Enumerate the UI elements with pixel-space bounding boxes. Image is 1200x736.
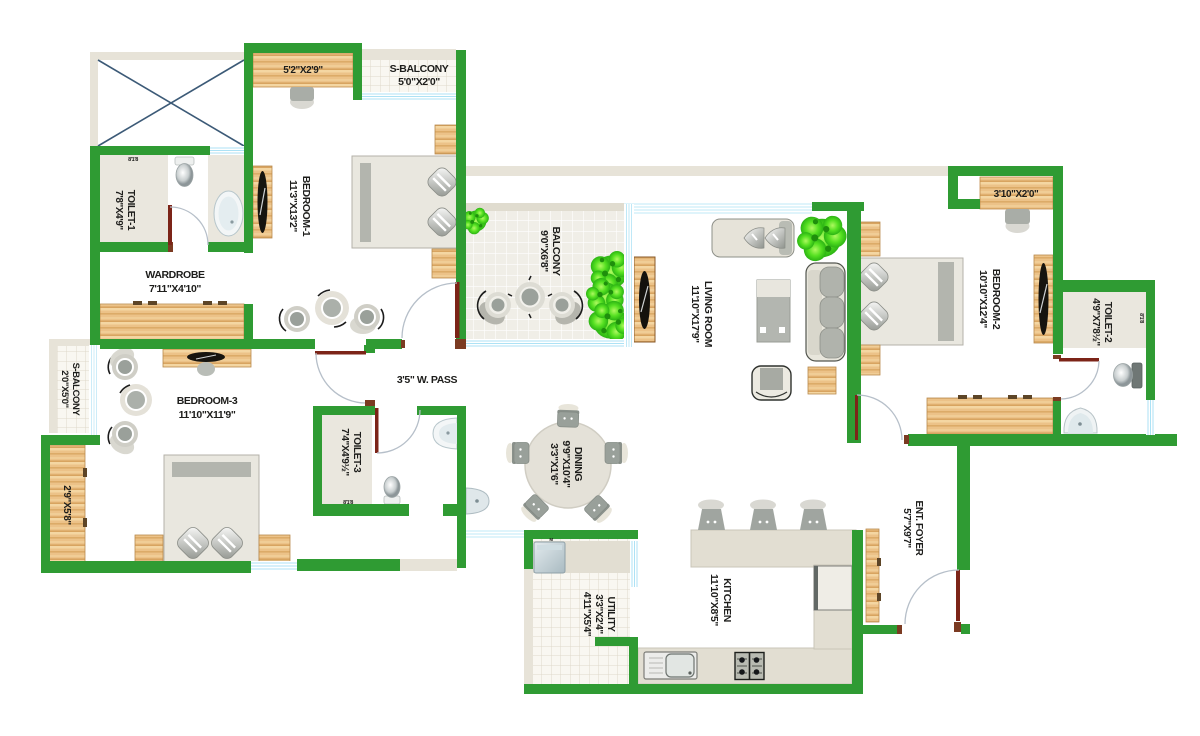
svg-text:8'1'8: 8'1'8 — [1138, 313, 1144, 323]
svg-text:5'0"X2'0": 5'0"X2'0" — [398, 76, 440, 88]
svg-text:11'10"X11'9": 11'10"X11'9" — [179, 409, 236, 421]
svg-text:8'1'8: 8'1'8 — [128, 157, 138, 163]
svg-text:BEDROOM-111'3"X13'2": BEDROOM-111'3"X13'2" — [287, 176, 312, 237]
svg-text:8'1'8: 8'1'8 — [343, 500, 353, 506]
svg-text:DINING9'9"X10'4"3'3"X1'6": DINING9'9"X10'4"3'3"X1'6" — [548, 440, 584, 488]
svg-text:KITCHEN11'10"X8'5": KITCHEN11'10"X8'5" — [708, 574, 733, 626]
svg-text:5'2"X2'9": 5'2"X2'9" — [283, 65, 323, 76]
svg-text:7'11"X4'10": 7'11"X4'10" — [149, 283, 201, 295]
svg-text:UTILITY3'3"X2'4"4'11"X5'4": UTILITY3'3"X2'4"4'11"X5'4" — [581, 592, 616, 637]
svg-text:3'10"X2'0": 3'10"X2'0" — [994, 189, 1039, 200]
svg-text:TOILET-37'4"X4'9½": TOILET-37'4"X4'9½" — [339, 428, 362, 476]
svg-text:WARDROBE: WARDROBE — [145, 269, 205, 281]
svg-text:TOILET-17'8"X4'9": TOILET-17'8"X4'9" — [113, 190, 136, 231]
svg-text:S-BALCONY: S-BALCONY — [390, 63, 449, 75]
svg-text:3'5" W. PASS: 3'5" W. PASS — [397, 374, 458, 386]
svg-text:2'9"X5'8": 2'9"X5'8" — [61, 485, 72, 525]
svg-text:BEDROOM-210'10"X12'4": BEDROOM-210'10"X12'4" — [977, 269, 1002, 330]
svg-text:BEDROOM-3: BEDROOM-3 — [177, 395, 238, 407]
svg-text:LIVING ROOM11'10"X17'9": LIVING ROOM11'10"X17'9" — [689, 281, 714, 348]
svg-text:BALCONY9'0"X6'8": BALCONY9'0"X6'8" — [538, 226, 562, 276]
svg-text:TOILET-24'9"X7'8½": TOILET-24'9"X7'8½" — [1090, 298, 1113, 346]
